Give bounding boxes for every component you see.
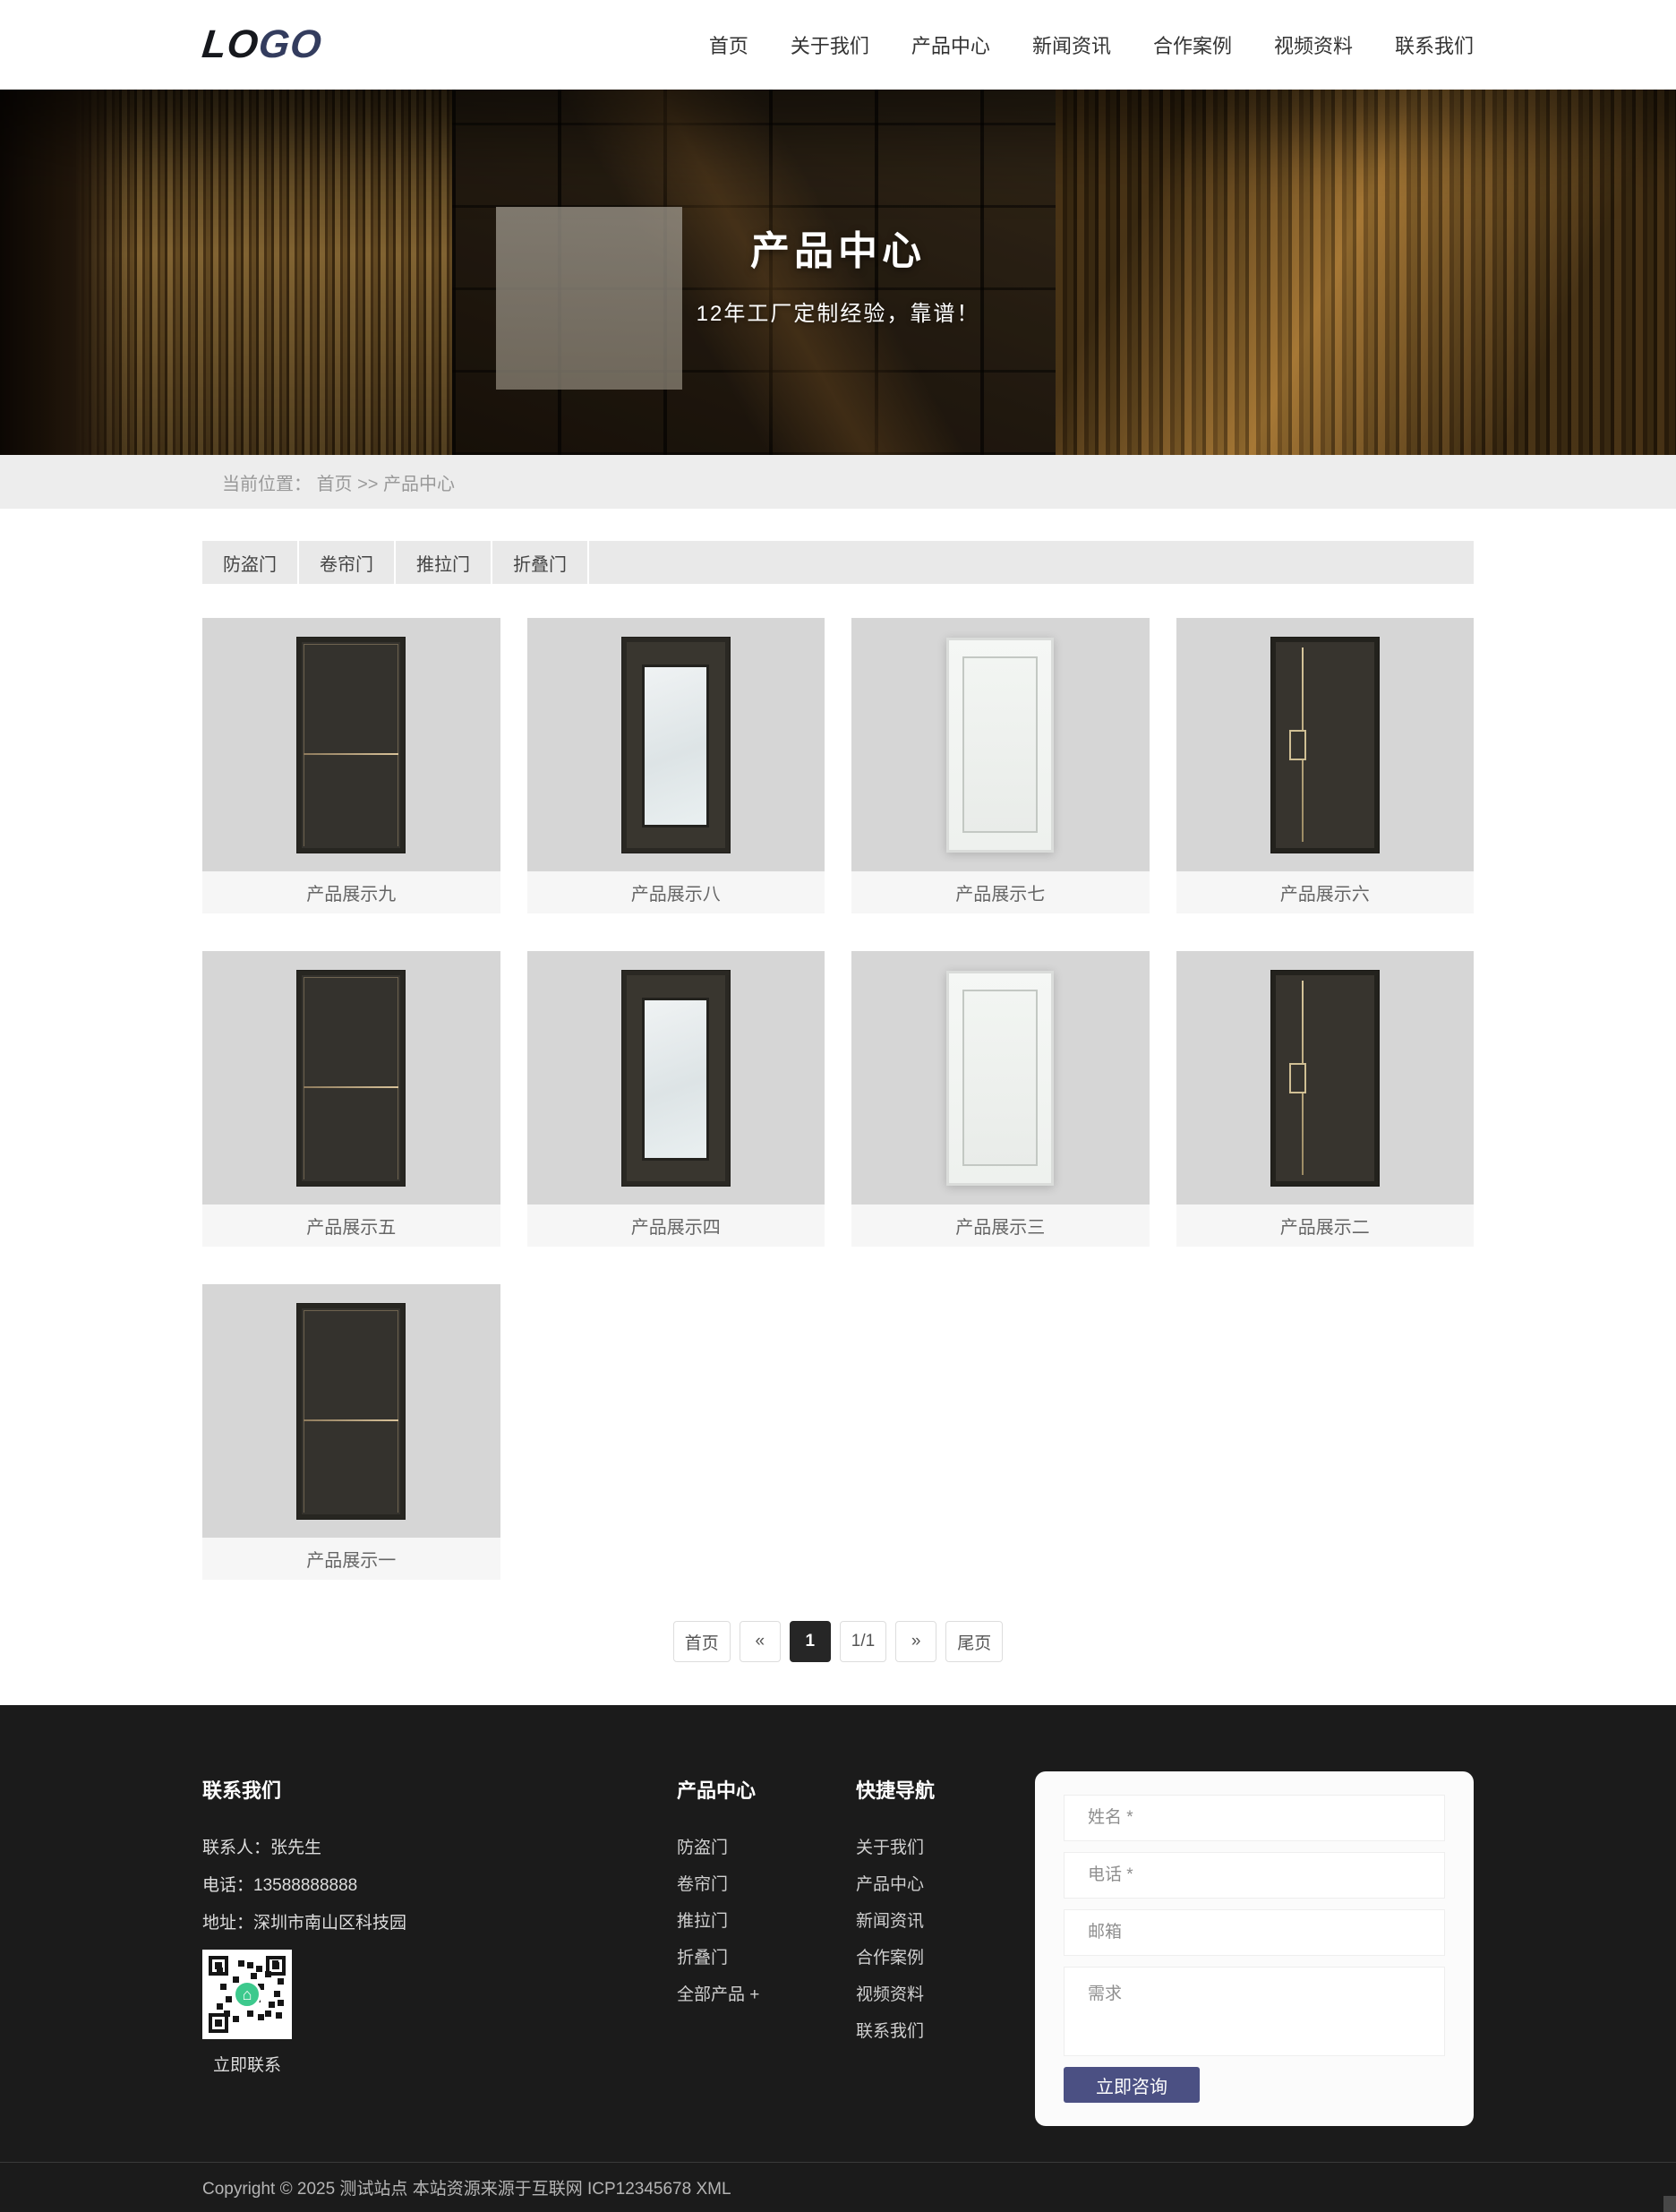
footer-contact-title: 联系我们 — [202, 1775, 471, 1804]
scrollbar-corner[interactable] — [1663, 2196, 1676, 2212]
footer-link-videos[interactable]: 视频资料 — [856, 1981, 972, 2005]
product-card[interactable]: 产品展示三 — [851, 951, 1150, 1247]
breadcrumb: 当前位置： 首页 >> 产品中心 — [202, 469, 1474, 495]
product-card[interactable]: 产品展示八 — [527, 618, 825, 913]
door-image — [946, 638, 1054, 853]
pagination-next-button[interactable]: » — [895, 1621, 936, 1662]
breadcrumb-current: 产品中心 — [383, 475, 455, 494]
product-title: 产品展示八 — [527, 871, 825, 913]
qr-label: 立即联系 — [213, 2052, 471, 2076]
site-footer: 联系我们 联系人：张先生 电话：13588888888 地址：深圳市南山区科技园… — [0, 1705, 1676, 2212]
product-image — [202, 951, 500, 1205]
door-image — [622, 971, 730, 1186]
product-image — [202, 618, 500, 871]
footer-products-column: 产品中心 防盗门 卷帘门 推拉门 折叠门 全部产品 + — [677, 1775, 820, 2126]
product-title: 产品展示二 — [1176, 1205, 1475, 1247]
contact-phone: 电话：13588888888 — [202, 1872, 471, 1896]
door-image — [622, 638, 730, 853]
pagination-prev-button[interactable]: « — [740, 1621, 781, 1662]
breadcrumb-separator: >> — [357, 475, 378, 494]
footer-link-all-products[interactable]: 全部产品 + — [677, 1981, 820, 2005]
footer-link-cases[interactable]: 合作案例 — [856, 1944, 972, 1968]
contact-address: 地址：深圳市南山区科技园 — [202, 1909, 471, 1933]
product-title: 产品展示七 — [851, 871, 1150, 913]
contact-person: 联系人：张先生 — [202, 1834, 471, 1858]
logo[interactable]: LOGO — [200, 22, 324, 67]
nav-item-about[interactable]: 关于我们 — [791, 30, 869, 59]
breadcrumb-home-link[interactable]: 首页 — [317, 475, 353, 494]
pagination-last-button[interactable]: 尾页 — [945, 1621, 1003, 1662]
footer-link-folding-door[interactable]: 折叠门 — [677, 1944, 820, 1968]
page-subtitle: 12年工厂定制经验，靠谱！ — [697, 296, 980, 327]
nav-item-news[interactable]: 新闻资讯 — [1032, 30, 1111, 59]
logo-part-1: LO — [200, 22, 261, 66]
product-title: 产品展示三 — [851, 1205, 1150, 1247]
product-image — [527, 951, 825, 1205]
product-card[interactable]: 产品展示七 — [851, 618, 1150, 913]
product-card[interactable]: 产品展示二 — [1176, 951, 1475, 1247]
site-header: LOGO 首页 关于我们 产品中心 新闻资讯 合作案例 视频资料 联系我们 — [0, 0, 1676, 90]
nav-item-home[interactable]: 首页 — [709, 30, 748, 59]
message-field[interactable] — [1064, 1967, 1445, 2056]
product-image — [1176, 618, 1475, 871]
product-title: 产品展示六 — [1176, 871, 1475, 913]
product-image — [851, 951, 1150, 1205]
product-image — [1176, 951, 1475, 1205]
main-content: 防盗门 卷帘门 推拉门 折叠门 产品展示九 产品展示八 产品展示七 产品展示六 … — [202, 541, 1474, 1662]
footer-quicknav-column: 快捷导航 关于我们 产品中心 新闻资讯 合作案例 视频资料 联系我们 — [856, 1775, 972, 2126]
logo-part-2: GO — [257, 22, 325, 66]
product-card[interactable]: 产品展示六 — [1176, 618, 1475, 913]
product-title: 产品展示五 — [202, 1205, 500, 1247]
copyright-text: Copyright © 2025 测试站点 本站资源来源于互联网 ICP1234… — [202, 2175, 1474, 2199]
tab-sliding-door[interactable]: 推拉门 — [396, 541, 492, 584]
door-image — [297, 971, 405, 1186]
pagination-first-button[interactable]: 首页 — [673, 1621, 731, 1662]
submit-inquiry-button[interactable]: 立即咨询 — [1064, 2067, 1200, 2103]
nav-item-contact[interactable]: 联系我们 — [1395, 30, 1474, 59]
breadcrumb-label: 当前位置： — [222, 475, 312, 494]
pagination-page-1[interactable]: 1 — [790, 1621, 831, 1662]
product-card[interactable]: 产品展示四 — [527, 951, 825, 1247]
name-field[interactable] — [1064, 1795, 1445, 1841]
door-image — [946, 971, 1054, 1186]
nav-item-videos[interactable]: 视频资料 — [1274, 30, 1353, 59]
footer-link-products[interactable]: 产品中心 — [856, 1871, 972, 1895]
footer-contact-column: 联系我们 联系人：张先生 电话：13588888888 地址：深圳市南山区科技园… — [202, 1775, 471, 2126]
pagination-page-info: 1/1 — [840, 1621, 886, 1662]
nav-item-products[interactable]: 产品中心 — [911, 30, 990, 59]
footer-link-roller-door[interactable]: 卷帘门 — [677, 1871, 820, 1895]
product-card[interactable]: 产品展示一 — [202, 1284, 500, 1580]
footer-products-title: 产品中心 — [677, 1775, 820, 1804]
nav-item-cases[interactable]: 合作案例 — [1153, 30, 1232, 59]
product-title: 产品展示四 — [527, 1205, 825, 1247]
category-tabs: 防盗门 卷帘门 推拉门 折叠门 — [202, 541, 1474, 584]
product-grid: 产品展示九 产品展示八 产品展示七 产品展示六 产品展示五 产品展示四 产品展示… — [202, 618, 1474, 1580]
copyright-bar: Copyright © 2025 测试站点 本站资源来源于互联网 ICP1234… — [0, 2162, 1676, 2212]
door-image — [297, 1304, 405, 1519]
footer-link-sliding-door[interactable]: 推拉门 — [677, 1908, 820, 1932]
pagination: 首页 « 1 1/1 » 尾页 — [202, 1621, 1474, 1662]
breadcrumb-bar: 当前位置： 首页 >> 产品中心 — [0, 455, 1676, 509]
product-title: 产品展示一 — [202, 1538, 500, 1580]
tab-roller-door[interactable]: 卷帘门 — [299, 541, 396, 584]
product-image — [851, 618, 1150, 871]
footer-link-contact[interactable]: 联系我们 — [856, 2018, 972, 2042]
product-card[interactable]: 产品展示九 — [202, 618, 500, 913]
door-image — [1271, 638, 1379, 853]
product-title: 产品展示九 — [202, 871, 500, 913]
inquiry-form: 立即咨询 — [1035, 1771, 1474, 2126]
product-image — [527, 618, 825, 871]
footer-link-about[interactable]: 关于我们 — [856, 1834, 972, 1858]
tab-folding-door[interactable]: 折叠门 — [492, 541, 589, 584]
phone-field[interactable] — [1064, 1852, 1445, 1899]
hero-banner: 产品中心 12年工厂定制经验，靠谱！ — [0, 90, 1676, 455]
qr-code: ⌂ — [202, 1950, 292, 2039]
door-image — [1271, 971, 1379, 1186]
email-field[interactable] — [1064, 1909, 1445, 1956]
product-card[interactable]: 产品展示五 — [202, 951, 500, 1247]
home-icon: ⌂ — [233, 1980, 261, 2009]
footer-link-security-door[interactable]: 防盗门 — [677, 1834, 820, 1858]
page-title: 产品中心 — [750, 219, 926, 276]
product-image — [202, 1284, 500, 1538]
tab-security-door[interactable]: 防盗门 — [202, 541, 299, 584]
door-image — [297, 638, 405, 853]
footer-quicknav-title: 快捷导航 — [856, 1775, 972, 1804]
footer-link-news[interactable]: 新闻资讯 — [856, 1908, 972, 1932]
main-nav: 首页 关于我们 产品中心 新闻资讯 合作案例 视频资料 联系我们 — [709, 30, 1474, 59]
